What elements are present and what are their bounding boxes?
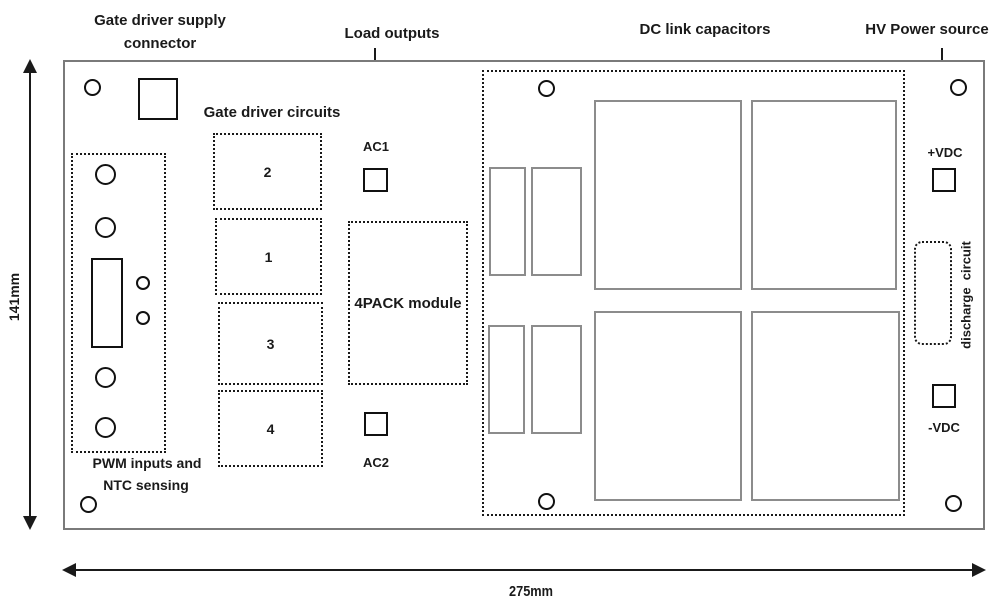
pwm-label-line1: PWM inputs and [93,455,202,471]
ac2-pad [364,412,388,436]
ntc-sense-hole-1 [136,276,150,290]
pcb-layout-diagram: Gate driver supply connector Load output… [0,0,1000,614]
vdc-minus-pad [932,384,956,408]
hv-power-source-label: HV Power source [865,21,988,38]
dc-link-capacitors-label: DC link capacitors [640,21,771,38]
pwm-label-line2: NTC sensing [103,477,189,493]
vdc-minus-label: -VDC [928,420,960,435]
gate-driver-box-3-number: 3 [267,336,275,352]
gate-driver-box-2: 2 [213,133,322,210]
gate-driver-box-1-number: 1 [265,249,273,265]
discharge-circuit-label: discharge circuit [959,241,974,349]
gate-driver-circuits-title: Gate driver circuits [204,104,341,121]
mounting-hole-top-right [950,79,967,96]
mounting-hole-top-left [84,79,101,96]
pwm-main-connector [91,258,123,348]
pwm-hole-4 [95,417,116,438]
gate-driver-supply-label-line1: Gate driver supply [94,12,226,29]
width-dimension-line [75,569,973,571]
gate-driver-box-4-number: 4 [267,421,275,437]
dc-link-hole-bottom [538,493,555,510]
pwm-hole-2 [95,217,116,238]
pwm-hole-3 [95,367,116,388]
4pack-module-label: 4PACK module [354,295,461,312]
vdc-plus-label: +VDC [927,145,962,160]
gate-driver-box-4: 4 [218,390,323,467]
pwm-hole-1 [95,164,116,185]
ac1-label: AC1 [363,139,389,154]
gate-driver-supply-connector-pad [138,78,178,120]
width-dimension-label: 275mm [509,583,553,600]
capacitor-small-top-2 [531,167,582,276]
capacitor-small-bottom-1 [488,325,525,434]
mounting-hole-bottom-left [80,496,97,513]
capacitor-large-bottom-1 [594,311,742,501]
dc-link-hole-top [538,80,555,97]
4pack-module-region: 4PACK module [348,221,468,385]
width-dimension-arrowhead-left [62,563,76,577]
width-dimension-arrowhead-right [972,563,986,577]
gate-driver-supply-label-line2: connector [124,35,197,52]
capacitor-large-bottom-2 [751,311,900,501]
ntc-sense-hole-2 [136,311,150,325]
gate-driver-box-3: 3 [218,302,323,385]
gate-driver-box-1: 1 [215,218,322,295]
capacitor-large-top-2 [751,100,897,290]
capacitor-small-bottom-2 [531,325,582,434]
discharge-circuit-region [914,241,952,345]
ac1-pad [363,168,388,192]
height-dimension-arrowhead-bottom [23,516,37,530]
ac2-label: AC2 [363,455,389,470]
load-outputs-label: Load outputs [345,25,440,42]
gate-driver-box-2-number: 2 [264,164,272,180]
mounting-hole-bottom-right [945,495,962,512]
capacitor-large-top-1 [594,100,742,290]
vdc-plus-pad [932,168,956,192]
height-dimension-line [29,71,31,517]
height-dimension-label: 141mm [6,273,22,321]
capacitor-small-top-1 [489,167,526,276]
